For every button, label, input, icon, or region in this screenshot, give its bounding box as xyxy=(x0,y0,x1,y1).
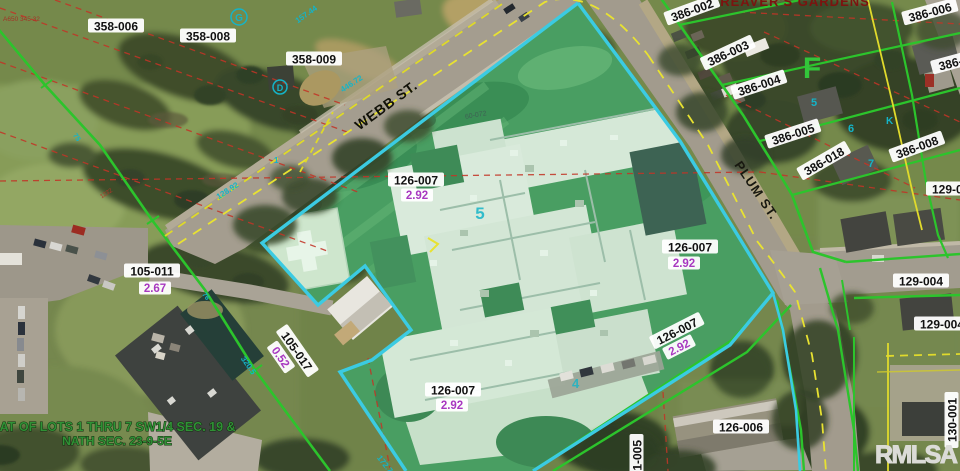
svg-text:129-004: 129-004 xyxy=(920,318,960,332)
svg-text:2.67: 2.67 xyxy=(144,283,166,295)
svg-text:NATH SEC. 23-9-5E: NATH SEC. 23-9-5E xyxy=(62,434,172,448)
svg-text:F: F xyxy=(803,52,821,85)
svg-text:126-007: 126-007 xyxy=(668,241,712,255)
svg-text:D: D xyxy=(277,83,284,93)
svg-text:5: 5 xyxy=(475,204,484,223)
svg-text:RMLSA: RMLSA xyxy=(875,441,958,469)
svg-text:7: 7 xyxy=(868,158,874,170)
svg-text:REAVER'S GARDENS: REAVER'S GARDENS xyxy=(720,0,870,9)
svg-text:358-009: 358-009 xyxy=(292,53,336,67)
svg-text:126-006: 126-006 xyxy=(719,421,763,435)
svg-text:4: 4 xyxy=(572,376,580,391)
svg-text:LAT OF LOTS 1 THRU 7 SW1/4 SEC: LAT OF LOTS 1 THRU 7 SW1/4 SEC. 19 & xyxy=(0,420,236,434)
svg-text:A650 345 32: A650 345 32 xyxy=(3,16,40,23)
svg-text:2.92: 2.92 xyxy=(441,400,463,412)
svg-text:K: K xyxy=(886,116,894,127)
svg-text:126-007: 126-007 xyxy=(394,174,438,188)
svg-text:G: G xyxy=(235,13,243,24)
svg-text:358-008: 358-008 xyxy=(186,30,230,44)
svg-text:1: 1 xyxy=(274,156,279,165)
svg-text:126-007: 126-007 xyxy=(431,384,475,398)
svg-text:6: 6 xyxy=(848,123,854,135)
svg-text:2.92: 2.92 xyxy=(406,190,428,202)
svg-text:5: 5 xyxy=(811,97,817,109)
svg-text:129-004: 129-004 xyxy=(899,275,943,289)
svg-text:131-005: 131-005 xyxy=(631,440,645,471)
svg-text:130-001: 130-001 xyxy=(946,398,960,442)
svg-text:105-011: 105-011 xyxy=(130,265,174,279)
svg-text:358-006: 358-006 xyxy=(94,20,138,34)
svg-text:129-004: 129-004 xyxy=(932,183,960,197)
svg-text:2.92: 2.92 xyxy=(673,258,695,270)
